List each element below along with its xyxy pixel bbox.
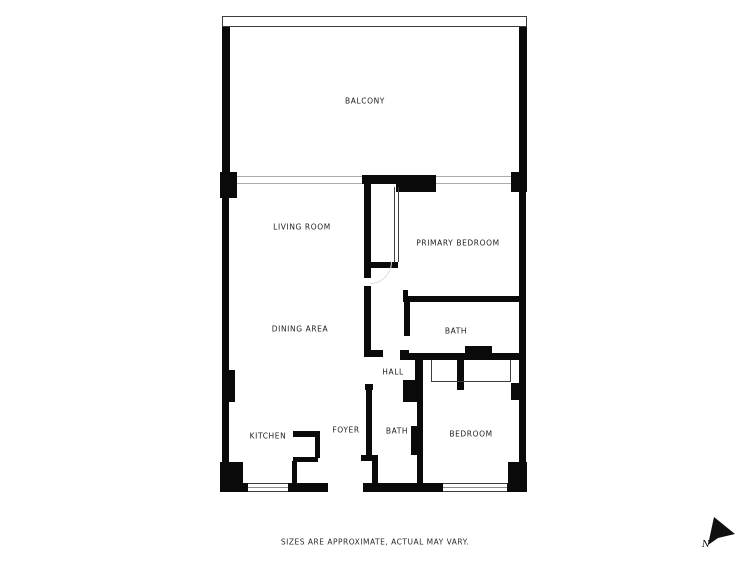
room-label-dining-area: DINING AREA [272,325,328,334]
hall-closet-doors [394,187,399,262]
kitchen-window [248,483,288,492]
north-arrow-icon [707,516,737,546]
top-wall-header [396,175,436,192]
exterior-wall-right [519,172,526,492]
room-label-living-room: LIVING ROOM [273,223,331,232]
balcony-railing [222,16,527,27]
disclaimer-text: SIZES ARE APPROXIMATE, ACTUAL MAY VARY. [281,538,469,547]
primary-bedroom-door-swing [370,262,392,284]
living-room-wall-lower [364,286,371,353]
kitchen-wall-v1 [315,436,320,458]
room-label-balcony: BALCONY [345,97,385,106]
north-label: N [702,540,710,550]
room-label-bath-lower: BATH [386,427,408,436]
floor-plan: BALCONY LIVING ROOM PRIMARY BEDROOM DINI… [0,0,750,563]
balcony-wall-right [519,27,527,176]
room-label-hall: HALL [382,368,404,377]
room-label-primary-bedroom: PRIMARY BEDROOM [416,239,499,248]
bottom-wall-right [507,483,527,492]
room-label-bedroom: BEDROOM [449,430,492,439]
bath-lower-right-wall-b [417,455,423,484]
room-label-bath-upper: BATH [445,327,467,336]
room-label-kitchen: KITCHEN [250,432,287,441]
bedroom-window [443,483,507,492]
bath-lower-block-top [403,380,423,402]
bath-upper-fixture [465,346,492,354]
pilaster-right-mid [511,383,526,400]
primary-bedroom-bottom-wall [403,296,524,302]
kitchen-wall-v2 [292,461,297,484]
exterior-wall-left [222,172,229,492]
balcony-slider-living-room [237,176,362,184]
living-room-wall-foot [364,350,383,357]
balcony-slider-primary-bedroom [436,176,511,184]
bath-lower-left-wall [366,388,372,456]
bath-lower-block-mid [411,426,423,455]
hall-top-wall [400,353,524,360]
bath-lower-right-wall [417,402,423,426]
balcony-wall-left [222,27,230,176]
room-label-foyer: FOYER [332,426,359,435]
bath-lower-jog-v [372,460,378,485]
bath-lower-stub [415,360,423,382]
pilaster-left-mid [222,370,235,402]
bedroom-closet [431,360,511,382]
bath-upper-left-wall [404,296,410,336]
